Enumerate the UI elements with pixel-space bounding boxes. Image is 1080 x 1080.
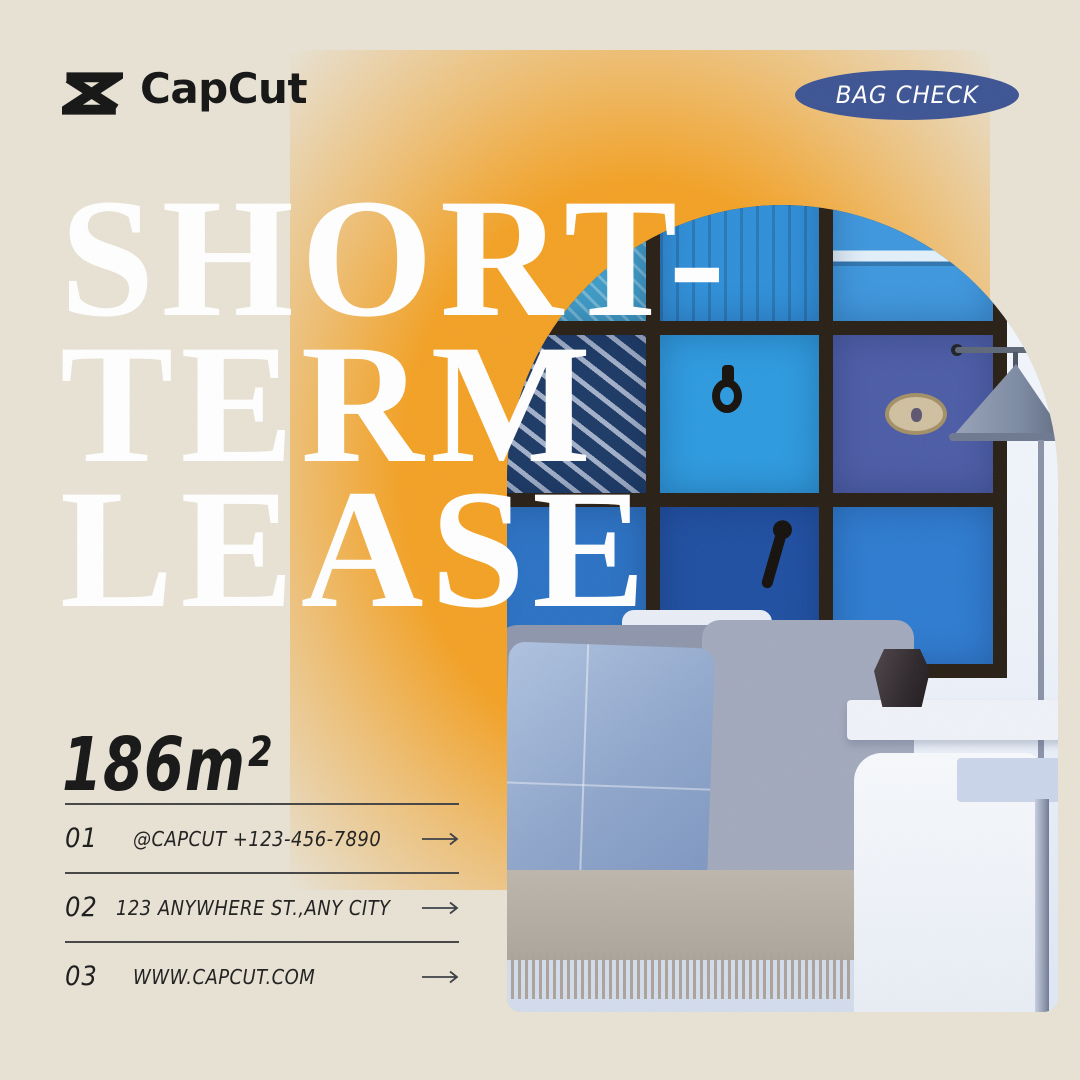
blanket-fringe bbox=[507, 953, 912, 999]
row-number: 02 bbox=[65, 892, 111, 923]
door-tile bbox=[833, 205, 993, 321]
area-size-label: 186m² bbox=[62, 722, 272, 808]
side-table bbox=[847, 700, 1058, 740]
contact-row-address[interactable]: 02 123 ANYWHERE ST.,ANY CITY bbox=[65, 872, 459, 941]
throw-blanket bbox=[507, 870, 912, 960]
headline-line-3: LEASE bbox=[60, 464, 652, 634]
row-number: 01 bbox=[65, 823, 126, 854]
capcut-logo: CapCut bbox=[62, 70, 123, 117]
row-label: WWW.CAPCUT.COM bbox=[133, 965, 392, 989]
capcut-logo-text: CapCut bbox=[140, 64, 307, 113]
row-label: 123 ANYWHERE ST.,ANY CITY bbox=[116, 896, 391, 920]
poster-canvas: SHORT- TERM LEASE CapCut BAG CHECK 186m²… bbox=[0, 0, 1080, 1080]
arrow-right-icon bbox=[421, 970, 459, 984]
arrow-right-icon bbox=[421, 901, 459, 915]
table-leg bbox=[1035, 799, 1049, 1012]
door-tile bbox=[660, 335, 820, 492]
bag-check-badge[interactable]: BAG CHECK bbox=[795, 70, 1019, 120]
capcut-logo-icon bbox=[62, 70, 123, 117]
dark-vase bbox=[874, 649, 930, 707]
row-label: @CAPCUT +123-456-7890 bbox=[133, 827, 392, 851]
row-number: 03 bbox=[65, 961, 126, 992]
contact-list: 01 @CAPCUT +123-456-7890 02 123 ANYWHERE… bbox=[65, 803, 459, 1010]
bag-check-badge-label: BAG CHECK bbox=[835, 81, 978, 109]
blue-pillow bbox=[507, 641, 715, 888]
contact-row-website[interactable]: 03 WWW.CAPCUT.COM bbox=[65, 941, 459, 1010]
door-handle bbox=[760, 532, 786, 589]
contact-row-phone[interactable]: 01 @CAPCUT +123-456-7890 bbox=[65, 803, 459, 872]
arrow-right-icon bbox=[421, 832, 459, 846]
lower-side-table bbox=[957, 758, 1058, 802]
door-knocker bbox=[712, 379, 742, 413]
